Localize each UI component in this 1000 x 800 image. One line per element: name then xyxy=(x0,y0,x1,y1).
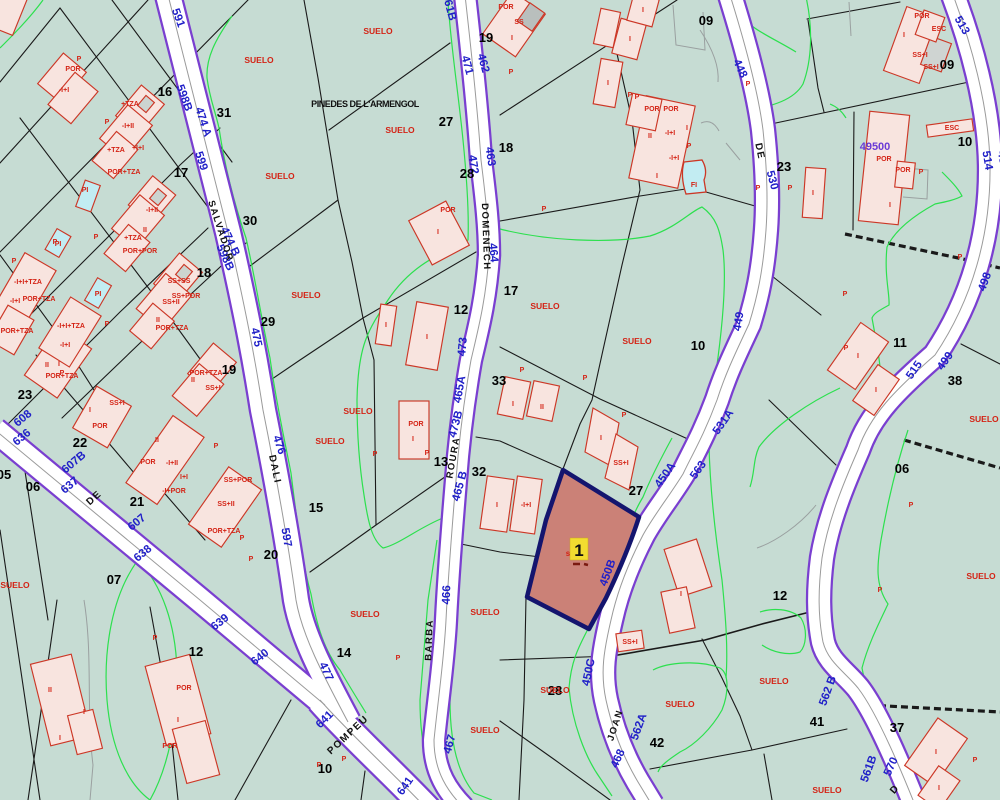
svg-text:SUELO: SUELO xyxy=(540,685,570,695)
svg-text:28: 28 xyxy=(460,166,474,181)
svg-text:SUELO: SUELO xyxy=(622,336,652,346)
svg-text:POR+TZA: POR+TZA xyxy=(108,169,141,176)
svg-text:33: 33 xyxy=(492,373,506,388)
svg-text:FI: FI xyxy=(691,182,697,189)
svg-text:POR+TZA: POR+TZA xyxy=(208,528,241,535)
svg-text:I: I xyxy=(385,322,387,329)
svg-text:09: 09 xyxy=(699,13,713,28)
svg-text:SUELO: SUELO xyxy=(385,125,415,135)
svg-text:s: s xyxy=(566,549,571,558)
svg-text:DOMENECH: DOMENECH xyxy=(479,203,492,271)
svg-text:P: P xyxy=(240,535,245,542)
svg-text:II: II xyxy=(48,687,52,694)
svg-text:POR: POR xyxy=(65,66,80,73)
svg-text:-I+II: -I+II xyxy=(122,123,134,130)
svg-text:19: 19 xyxy=(479,30,493,45)
svg-text:P: P xyxy=(909,502,914,509)
svg-text:P: P xyxy=(628,92,633,99)
svg-text:21: 21 xyxy=(130,494,144,509)
svg-text:SUELO: SUELO xyxy=(470,725,500,735)
svg-text:-I+II: -I+II xyxy=(146,207,158,214)
svg-text:POR+TZA: POR+TZA xyxy=(190,370,223,377)
svg-text:POR: POR xyxy=(92,423,107,430)
svg-text:42: 42 xyxy=(650,735,664,750)
svg-text:ESC: ESC xyxy=(932,26,946,33)
svg-text:P: P xyxy=(105,321,110,328)
svg-text:SS+I: SS+I xyxy=(622,639,637,646)
svg-text:12: 12 xyxy=(454,302,468,317)
svg-text:27: 27 xyxy=(439,114,453,129)
svg-text:-I+II: -I+II xyxy=(166,460,178,467)
svg-text:SUELO: SUELO xyxy=(315,436,345,446)
svg-text:-I+I: -I+I xyxy=(669,155,679,162)
svg-text:06: 06 xyxy=(895,461,909,476)
svg-text:II: II xyxy=(648,133,652,140)
svg-text:I: I xyxy=(600,435,602,442)
svg-text:SUELO: SUELO xyxy=(343,406,373,416)
svg-text:41: 41 xyxy=(810,714,824,729)
svg-text:SUELO: SUELO xyxy=(969,414,999,424)
svg-text:10: 10 xyxy=(691,338,705,353)
svg-text:I: I xyxy=(59,735,61,742)
svg-text:P: P xyxy=(153,635,158,642)
svg-text:POR: POR xyxy=(644,106,659,113)
svg-text:II: II xyxy=(540,404,544,411)
svg-text:I: I xyxy=(686,125,688,132)
svg-text:SUELO: SUELO xyxy=(530,301,560,311)
svg-text:06: 06 xyxy=(26,479,40,494)
svg-text:P: P xyxy=(844,345,849,352)
svg-text:I: I xyxy=(511,35,513,42)
svg-text:P: P xyxy=(520,367,525,374)
svg-text:16: 16 xyxy=(158,84,172,99)
svg-text:II: II xyxy=(45,362,49,369)
svg-text:SUELO: SUELO xyxy=(665,699,695,709)
svg-text:POR+TZA: POR+TZA xyxy=(156,325,189,332)
svg-text:I: I xyxy=(437,229,439,236)
svg-text:SUELO: SUELO xyxy=(0,580,30,590)
svg-text:20: 20 xyxy=(264,547,278,562)
svg-text:PINEDES DE L'ARMENGOL: PINEDES DE L'ARMENGOL xyxy=(311,99,420,109)
svg-text:POR: POR xyxy=(140,459,155,466)
svg-text:07: 07 xyxy=(107,572,121,587)
svg-text:P: P xyxy=(583,375,588,382)
svg-text:18: 18 xyxy=(499,140,513,155)
svg-text:P: P xyxy=(425,450,430,457)
svg-text:+TZA: +TZA xyxy=(107,147,125,154)
svg-text:I: I xyxy=(938,785,940,792)
svg-text:+I+I: +I+I xyxy=(132,145,144,152)
svg-text:P: P xyxy=(77,56,82,63)
svg-text:27: 27 xyxy=(629,483,643,498)
svg-text:SUELO: SUELO xyxy=(291,290,321,300)
svg-text:-I+I: -I+I xyxy=(521,502,531,509)
svg-text:POR: POR xyxy=(498,4,513,11)
svg-text:38: 38 xyxy=(948,373,962,388)
svg-text:SS+SS: SS+SS xyxy=(168,278,191,285)
svg-text:I: I xyxy=(642,7,644,14)
svg-text:22: 22 xyxy=(73,435,87,450)
svg-text:P: P xyxy=(317,762,322,769)
svg-text:P: P xyxy=(788,185,793,192)
svg-text:473: 473 xyxy=(456,337,470,357)
svg-text:POR: POR xyxy=(663,106,678,113)
svg-text:P: P xyxy=(60,370,65,377)
svg-text:I: I xyxy=(680,591,682,598)
svg-text:P: P xyxy=(509,69,514,76)
svg-text:POR: POR xyxy=(914,13,929,20)
svg-text:I: I xyxy=(89,407,91,414)
svg-text:SUELO: SUELO xyxy=(350,609,380,619)
svg-text:SS+II: SS+II xyxy=(162,299,179,306)
svg-text:+TZA: +TZA xyxy=(124,235,142,242)
svg-text:-I+I: -I+I xyxy=(60,342,70,349)
svg-text:II: II xyxy=(143,227,147,234)
svg-text:ESC: ESC xyxy=(945,125,959,132)
svg-text:23: 23 xyxy=(777,159,791,174)
svg-text:I: I xyxy=(83,709,85,716)
svg-text:SS: SS xyxy=(514,19,524,26)
svg-text:II: II xyxy=(191,377,195,384)
svg-text:I: I xyxy=(656,173,658,180)
svg-text:POR: POR xyxy=(895,167,910,174)
svg-text:23: 23 xyxy=(18,387,32,402)
svg-text:09: 09 xyxy=(940,57,954,72)
svg-text:11: 11 xyxy=(893,335,907,350)
svg-text:29: 29 xyxy=(261,314,275,329)
svg-text:P: P xyxy=(53,239,58,246)
svg-text:POR+POR: POR+POR xyxy=(123,248,157,255)
svg-text:I+I: I+I xyxy=(180,474,188,481)
svg-text:SUELO: SUELO xyxy=(759,676,789,686)
svg-text:II: II xyxy=(156,317,160,324)
svg-text:POR: POR xyxy=(176,685,191,692)
svg-text:SUELO: SUELO xyxy=(265,171,295,181)
svg-text:-I+I+TZA: -I+I+TZA xyxy=(14,279,42,286)
svg-text:P: P xyxy=(622,412,627,419)
svg-text:BARBA: BARBA xyxy=(423,619,435,661)
svg-text:37: 37 xyxy=(890,720,904,735)
svg-text:PI: PI xyxy=(82,187,89,194)
svg-text:12: 12 xyxy=(189,644,203,659)
svg-text:I: I xyxy=(496,502,498,509)
svg-text:P: P xyxy=(249,556,254,563)
svg-text:PI: PI xyxy=(95,291,102,298)
svg-text:POR+TZA: POR+TZA xyxy=(1,328,34,335)
svg-text:19: 19 xyxy=(222,362,236,377)
svg-text:SS+II: SS+II xyxy=(217,501,234,508)
svg-text:17: 17 xyxy=(504,283,518,298)
svg-text:SS+I: SS+I xyxy=(613,460,628,467)
svg-text:I: I xyxy=(412,436,414,443)
svg-text:10: 10 xyxy=(958,134,972,149)
svg-text:POR: POR xyxy=(162,743,177,750)
svg-text:30: 30 xyxy=(243,213,257,228)
svg-text:I: I xyxy=(426,334,428,341)
svg-text:32: 32 xyxy=(472,464,486,479)
svg-text:SUELO: SUELO xyxy=(363,26,393,36)
svg-text:SS+I: SS+I xyxy=(205,385,220,392)
svg-text:P: P xyxy=(214,443,219,450)
svg-text:+TZA: +TZA xyxy=(121,101,139,108)
svg-text:17: 17 xyxy=(174,165,188,180)
svg-text:P: P xyxy=(94,234,99,241)
svg-text:POR: POR xyxy=(408,421,423,428)
svg-text:P: P xyxy=(919,169,924,176)
svg-text:SUELO: SUELO xyxy=(812,785,842,795)
svg-text:I: I xyxy=(607,80,609,87)
svg-text:P: P xyxy=(746,81,751,88)
svg-text:-I+I: -I+I xyxy=(59,87,69,94)
svg-text:P: P xyxy=(542,206,547,213)
svg-text:18: 18 xyxy=(197,265,211,280)
svg-text:14: 14 xyxy=(337,645,352,660)
svg-text:P: P xyxy=(396,655,401,662)
svg-text:15: 15 xyxy=(309,500,323,515)
svg-text:SUELO: SUELO xyxy=(244,55,274,65)
svg-text:POR: POR xyxy=(440,207,455,214)
svg-text:-I+I+TZA: -I+I+TZA xyxy=(57,323,85,330)
svg-text:P: P xyxy=(342,756,347,763)
svg-text:P: P xyxy=(973,757,978,764)
svg-text:P: P xyxy=(958,254,963,261)
svg-text:12: 12 xyxy=(773,588,787,603)
svg-text:I: I xyxy=(812,190,814,197)
svg-text:I: I xyxy=(629,36,631,43)
svg-text:-I+I: -I+I xyxy=(665,130,675,137)
svg-text:49500: 49500 xyxy=(860,141,891,153)
svg-text:13: 13 xyxy=(434,454,448,469)
svg-text:I: I xyxy=(857,353,859,360)
svg-text:SS+I: SS+I xyxy=(109,400,124,407)
svg-text:P: P xyxy=(878,587,883,594)
svg-text:P: P xyxy=(105,119,110,126)
svg-text:I: I xyxy=(935,749,937,756)
svg-text:P: P xyxy=(687,143,692,150)
svg-text:P: P xyxy=(756,185,761,192)
svg-text:I: I xyxy=(903,32,905,39)
svg-text:-I+I: -I+I xyxy=(10,298,20,305)
svg-text:466: 466 xyxy=(441,585,454,605)
svg-text:31: 31 xyxy=(217,105,231,120)
svg-text:P: P xyxy=(12,258,17,265)
svg-text:SS+I: SS+I xyxy=(923,64,938,71)
svg-text:I: I xyxy=(889,202,891,209)
svg-text:SS+POR: SS+POR xyxy=(224,477,253,484)
svg-text:I: I xyxy=(58,361,60,368)
svg-text:II: II xyxy=(155,437,159,444)
svg-text:POR: POR xyxy=(876,156,891,163)
svg-text:P: P xyxy=(843,291,848,298)
svg-text:I: I xyxy=(177,717,179,724)
svg-text:SS+I: SS+I xyxy=(912,52,927,59)
svg-text:SUELO: SUELO xyxy=(966,571,996,581)
svg-text:-I+POR: -I+POR xyxy=(162,488,186,495)
svg-text:I: I xyxy=(875,387,877,394)
svg-text:P: P xyxy=(635,94,640,101)
svg-text:I: I xyxy=(512,401,514,408)
svg-text:POR+TZA: POR+TZA xyxy=(23,296,56,303)
svg-text:05: 05 xyxy=(0,467,11,482)
svg-text:P: P xyxy=(373,451,378,458)
svg-text:SUELO: SUELO xyxy=(470,607,500,617)
svg-text:1: 1 xyxy=(574,541,583,560)
